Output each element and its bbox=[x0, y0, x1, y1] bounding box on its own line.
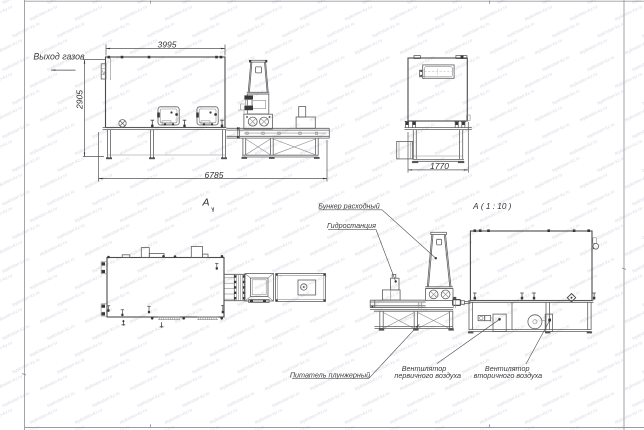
svg-text:1770: 1770 bbox=[430, 161, 449, 171]
svg-text:Гидростанция: Гидростанция bbox=[327, 221, 376, 230]
svg-text:Бункер расходный: Бункер расходный bbox=[318, 201, 380, 210]
svg-text:А ( 1 : 10 ): А ( 1 : 10 ) bbox=[472, 202, 511, 211]
svg-text:A: A bbox=[201, 197, 209, 209]
svg-text:вторичного воздуха: вторичного воздуха bbox=[474, 371, 542, 380]
svg-text:6785: 6785 bbox=[205, 170, 224, 180]
svg-text:Питатель плунжерный: Питатель плунжерный bbox=[290, 370, 370, 379]
svg-text:2905: 2905 bbox=[75, 90, 85, 110]
svg-text:3995: 3995 bbox=[158, 39, 177, 49]
svg-text:первичного воздуха: первичного воздуха bbox=[394, 371, 461, 380]
svg-text:Выход газов: Выход газов bbox=[33, 52, 85, 62]
